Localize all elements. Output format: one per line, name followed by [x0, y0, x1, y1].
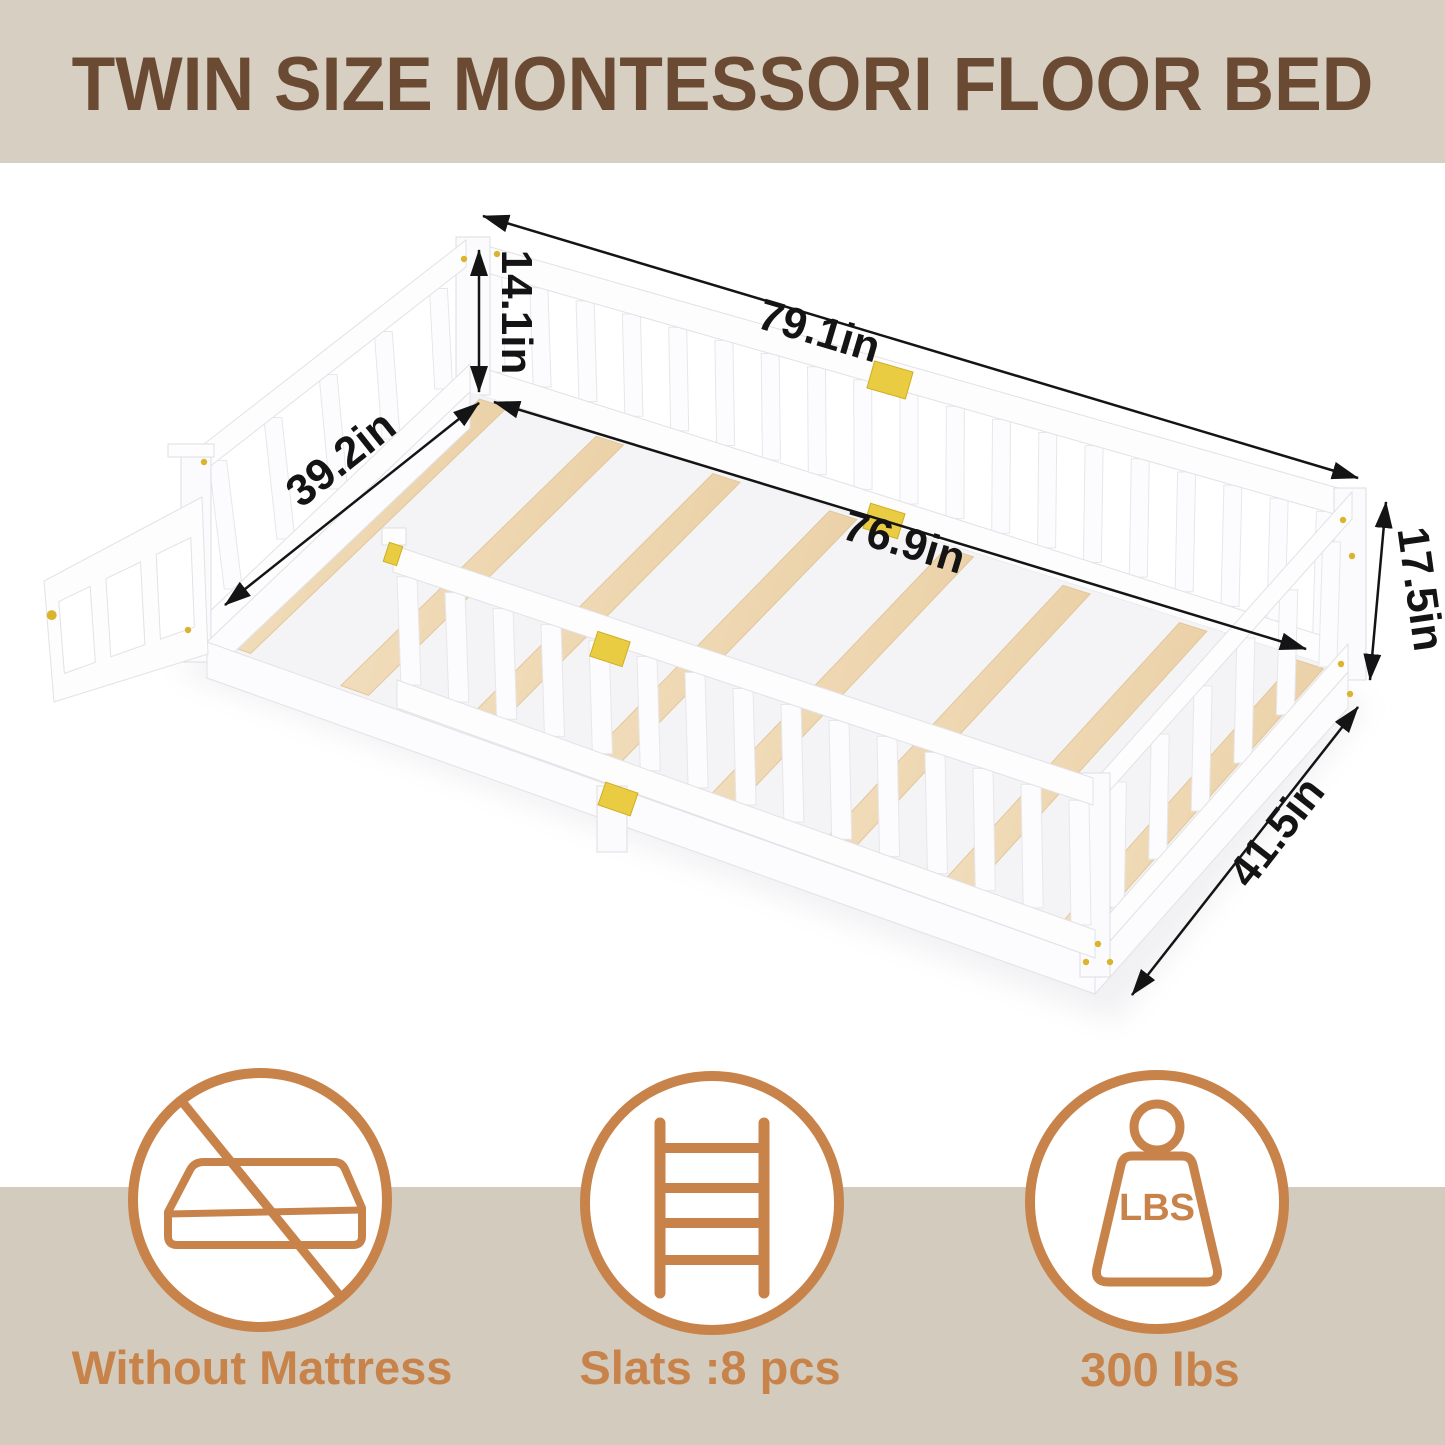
weight-icon: LBS [1035, 1080, 1279, 1324]
dim-label-rail-height: 14.1in [492, 250, 541, 375]
feature-weight-capacity: LBS [1025, 1070, 1289, 1334]
lbs-badge: LBS [1119, 1187, 1195, 1229]
page-title: TWIN SIZE MONTESSORI FLOOR BED [43, 0, 1401, 163]
feature-no-mattress [128, 1068, 392, 1332]
ladder-icon [590, 1081, 834, 1325]
feature-label-weight: 300 lbs [960, 1342, 1360, 1397]
feature-slats [580, 1071, 844, 1335]
feature-label-no-mattress: Without Mattress [0, 1340, 524, 1395]
header-banner: TWIN SIZE MONTESSORI FLOOR BED [0, 0, 1445, 163]
product-infographic: TWIN SIZE MONTESSORI FLOOR BED [0, 0, 1445, 1445]
feature-label-slats: Slats :8 pcs [520, 1340, 900, 1395]
dim-label-foot-height: 17.5in [1387, 524, 1445, 654]
no-mattress-icon [138, 1078, 382, 1322]
dim-arrow-foot-height [1370, 502, 1386, 680]
